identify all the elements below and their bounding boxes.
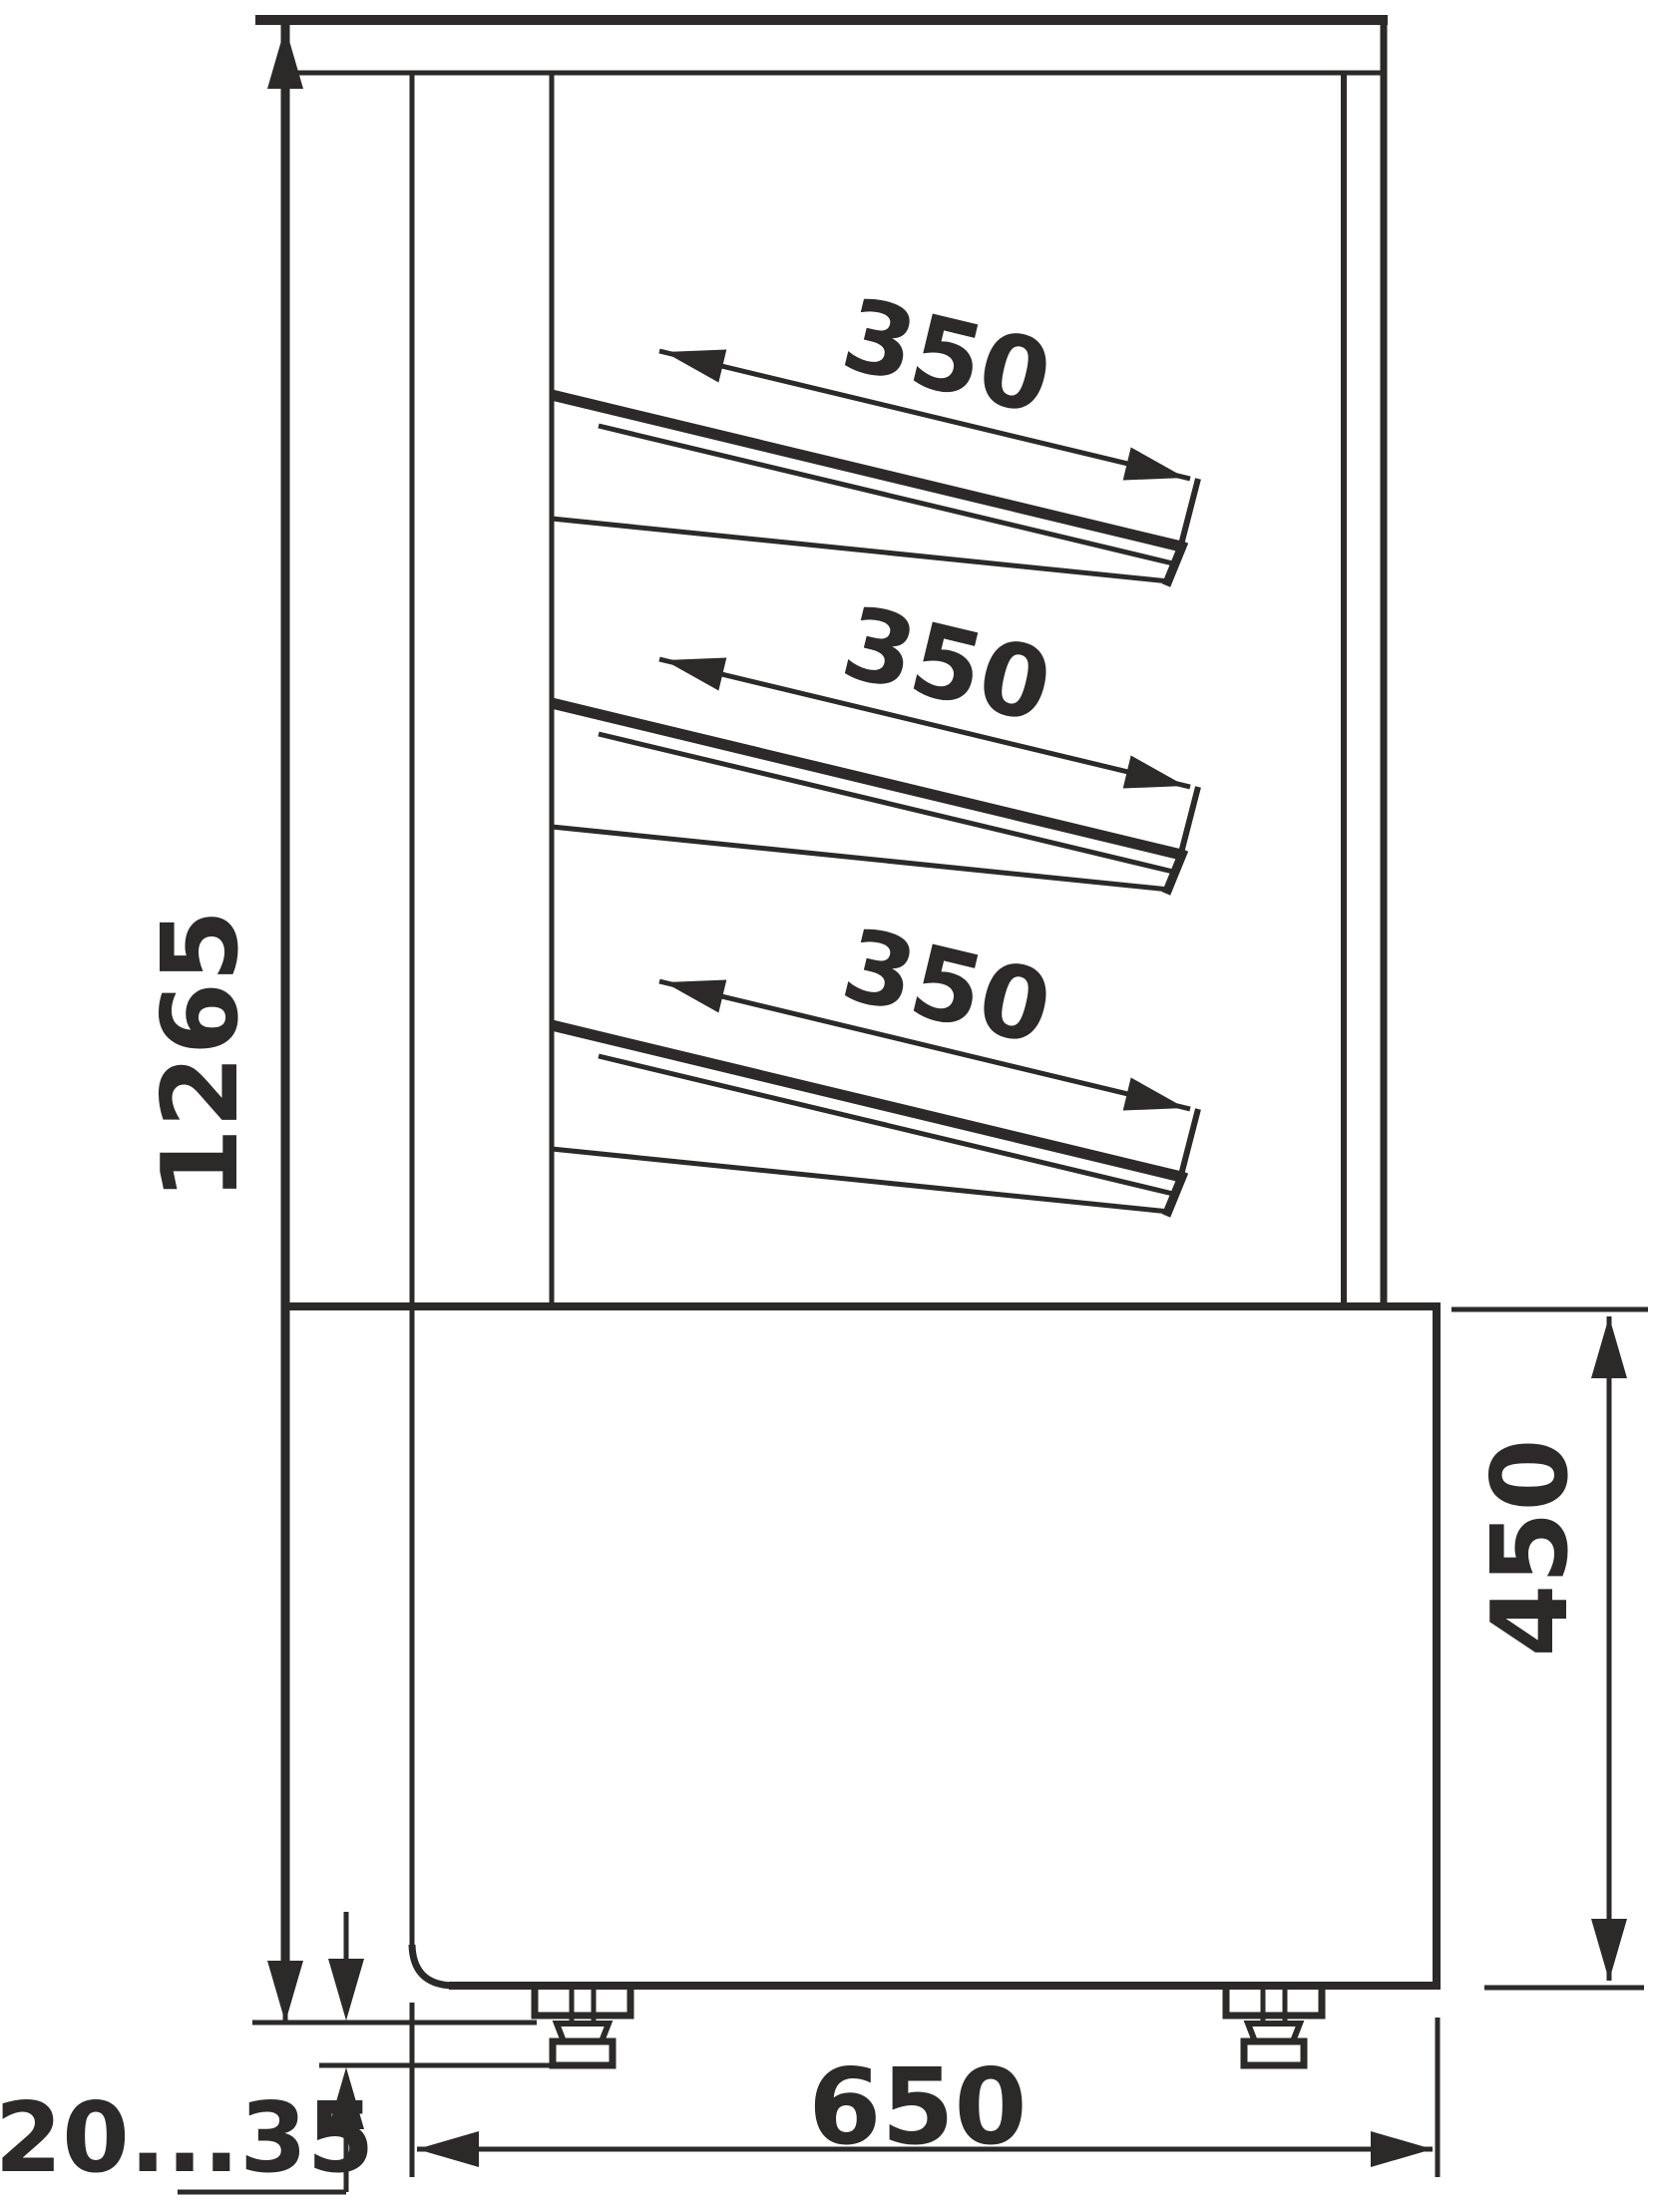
dim-arrowhead: [1123, 755, 1189, 802]
dim-label-base-height: 450: [1469, 1438, 1591, 1657]
shelf-3: 350: [552, 906, 1198, 1216]
shelf-1: 350: [552, 275, 1198, 585]
shelf-top-edge: [552, 395, 1181, 547]
dim-arrowhead: [660, 643, 726, 690]
dim-base-height: 450: [1451, 1309, 1648, 1988]
canopy: [255, 20, 1388, 73]
back-wall: [285, 15, 552, 1986]
shelf-top-edge: [552, 703, 1181, 855]
dim-label-base-depth: 650: [808, 2046, 1027, 2168]
shelf-rail-line: [599, 426, 1177, 564]
technical-drawing-page: 350 350 350 1: [0, 0, 1655, 2212]
base-bottom-left-corner: [412, 1945, 451, 1986]
dim-overall-height: 1265: [140, 27, 537, 2023]
dim-tick: [1179, 1109, 1198, 1183]
shelf-top-edge: [552, 1025, 1181, 1177]
shelf-rail-line: [599, 734, 1177, 873]
shelf-underside-edge: [552, 519, 1169, 581]
shelf-rail-line: [599, 1056, 1177, 1195]
dim-arrowhead: [1591, 1919, 1627, 1981]
dim-shelf-1: 350: [659, 275, 1198, 553]
dim-arrowhead: [1591, 1316, 1627, 1378]
dim-label-shelf-depth-middle: 350: [832, 583, 1061, 745]
dim-label-foot-adjust: 20...35: [0, 2081, 374, 2194]
dim-arrowhead: [1371, 2131, 1433, 2167]
foot-pad: [553, 2041, 613, 2065]
dim-arrowhead: [328, 1959, 364, 2021]
shelf-underside-edge: [552, 827, 1169, 890]
shelf-2: 350: [552, 583, 1198, 894]
dim-arrowhead: [267, 1961, 303, 2023]
right-foot: [1226, 1986, 1322, 2065]
base-cabinet: [281, 1302, 1441, 1986]
dim-arrowhead: [1123, 1077, 1189, 1124]
dim-shelf-2: 350: [659, 583, 1198, 861]
foot-bracket: [535, 1986, 630, 2016]
shelf-underside-edge: [552, 1149, 1169, 1212]
dim-label-overall-height: 1265: [140, 910, 261, 1201]
glass-front: [1344, 15, 1384, 1306]
drawing-canvas: 350 350 350 1: [0, 0, 1655, 2212]
dim-tick: [1179, 479, 1198, 553]
left-foot: [535, 1986, 630, 2065]
dim-base-depth: 650: [412, 2003, 1438, 2177]
dim-arrowhead: [660, 965, 726, 1012]
foot-pad: [1244, 2041, 1304, 2065]
dim-arrowhead: [660, 335, 726, 382]
dim-tick: [1179, 787, 1198, 861]
foot-bracket: [1226, 1986, 1322, 2016]
dim-foot-adjust: 20...35: [0, 1912, 612, 2194]
dim-arrowhead: [1123, 447, 1189, 494]
dim-arrowhead: [417, 2131, 479, 2167]
dim-label-shelf-depth-top: 350: [832, 275, 1061, 437]
dim-arrowhead: [267, 27, 303, 89]
dim-shelf-3: 350: [659, 906, 1198, 1183]
dim-label-shelf-depth-bottom: 350: [832, 906, 1061, 1067]
